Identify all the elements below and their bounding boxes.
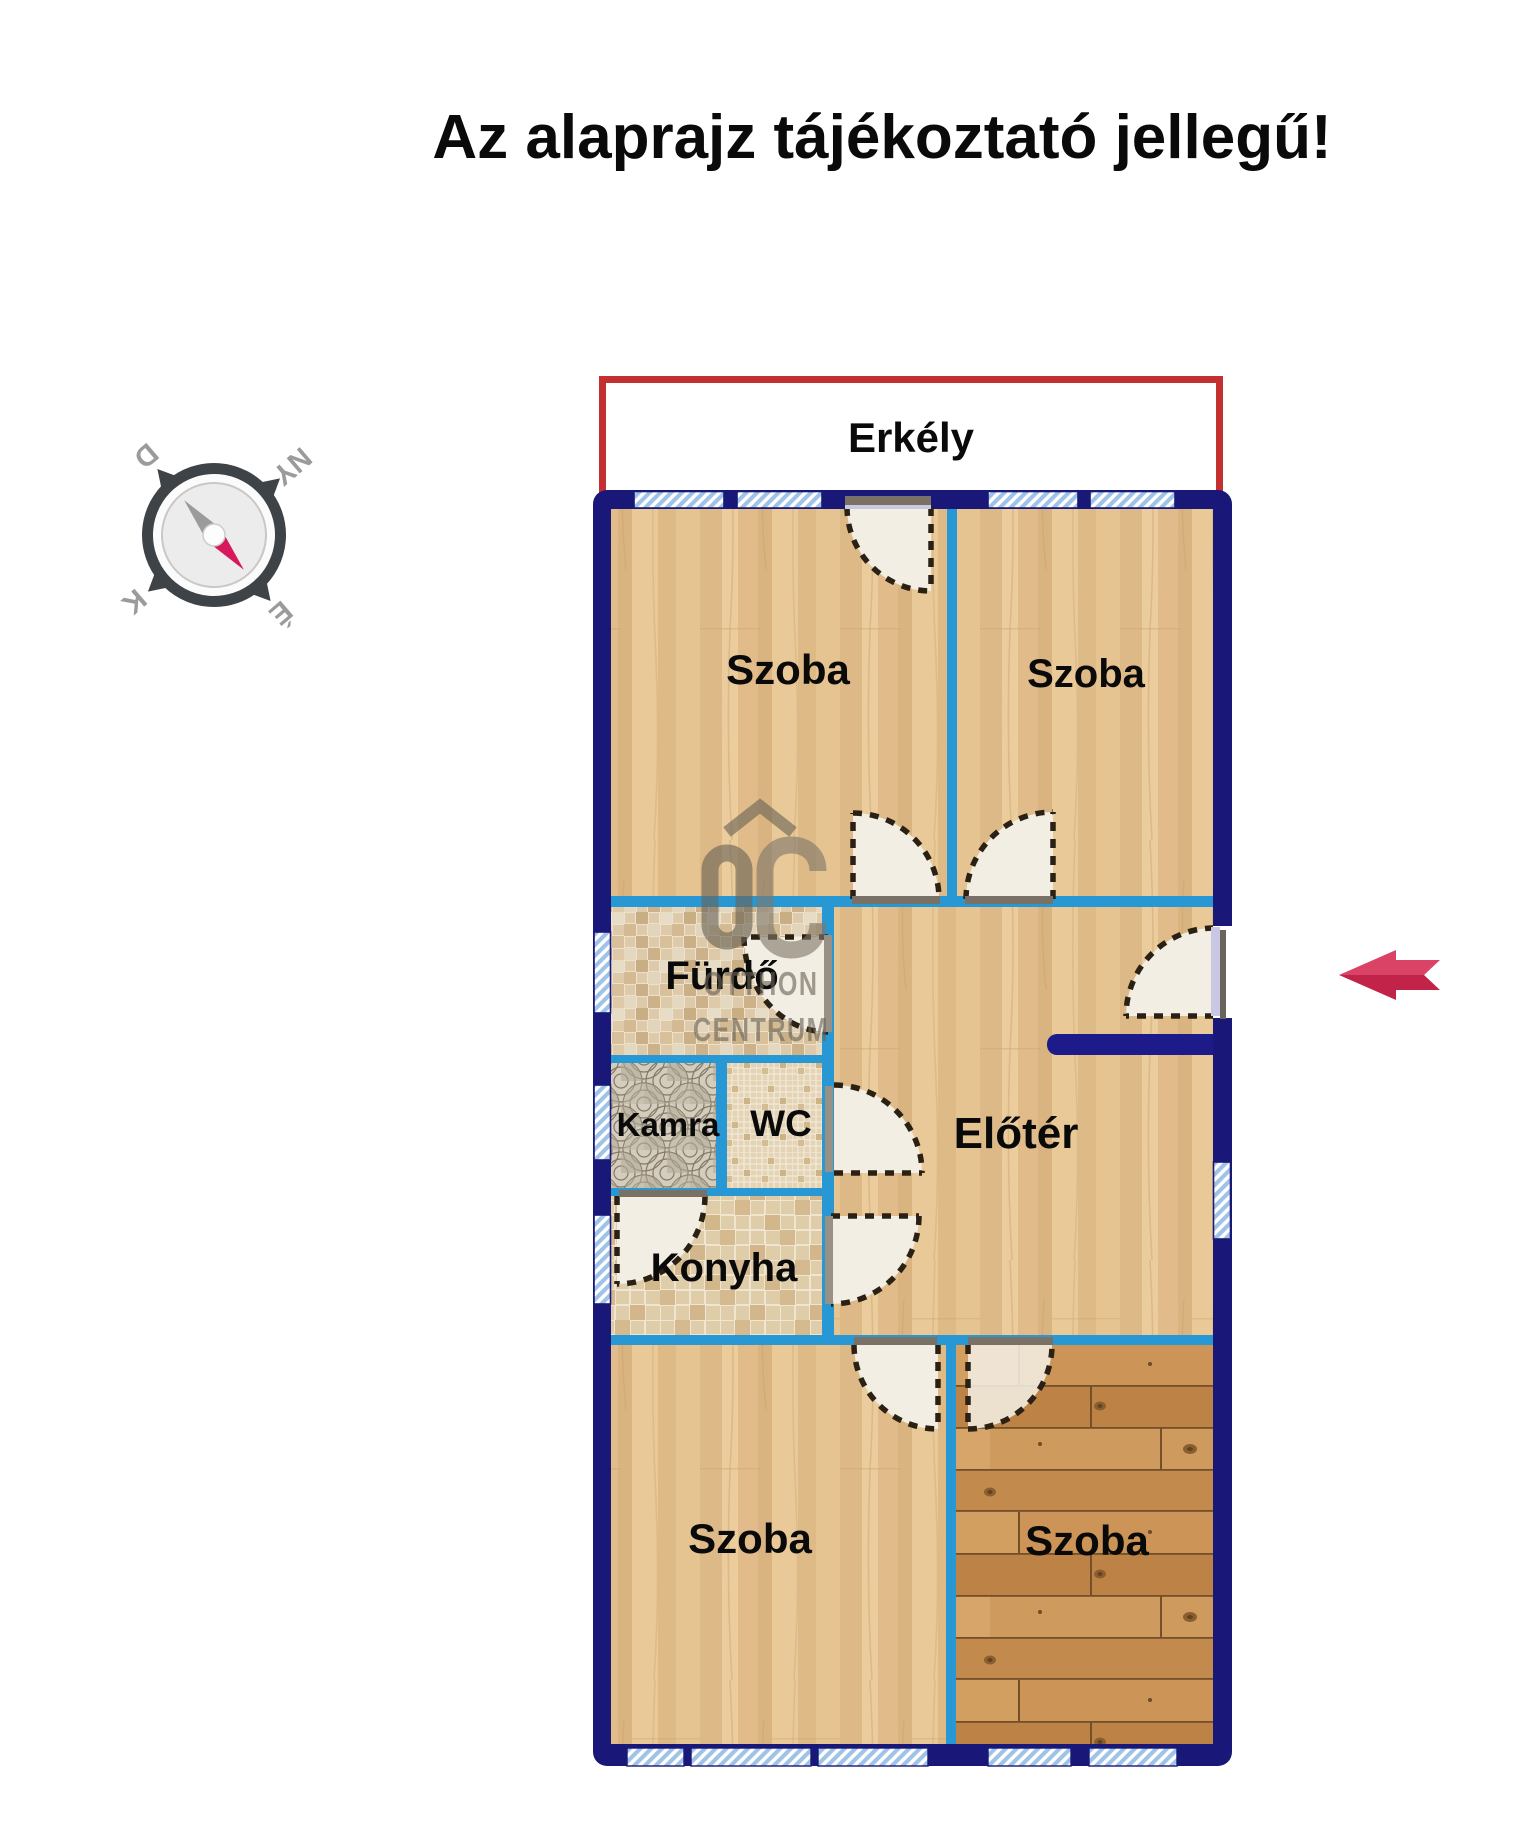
svg-text:Az alaprajz tájékoztató jelleg: Az alaprajz tájékoztató jellegű!: [432, 103, 1331, 172]
svg-text:K: K: [115, 582, 152, 620]
svg-text:Szoba: Szoba: [1027, 652, 1146, 696]
svg-text:Előtér: Előtér: [954, 1109, 1079, 1158]
svg-text:D: D: [127, 436, 164, 474]
svg-text:Szoba: Szoba: [688, 1515, 812, 1562]
svg-text:WC: WC: [750, 1103, 812, 1144]
svg-text:Kamra: Kamra: [617, 1106, 720, 1143]
svg-text:Szoba: Szoba: [1025, 1517, 1149, 1564]
svg-text:Szoba: Szoba: [726, 646, 850, 693]
svg-text:OTTHON: OTTHON: [704, 966, 819, 1003]
svg-text:CENTRUM: CENTRUM: [693, 1012, 829, 1049]
svg-text:Konyha: Konyha: [651, 1246, 798, 1290]
svg-text:Erkély: Erkély: [848, 414, 975, 461]
